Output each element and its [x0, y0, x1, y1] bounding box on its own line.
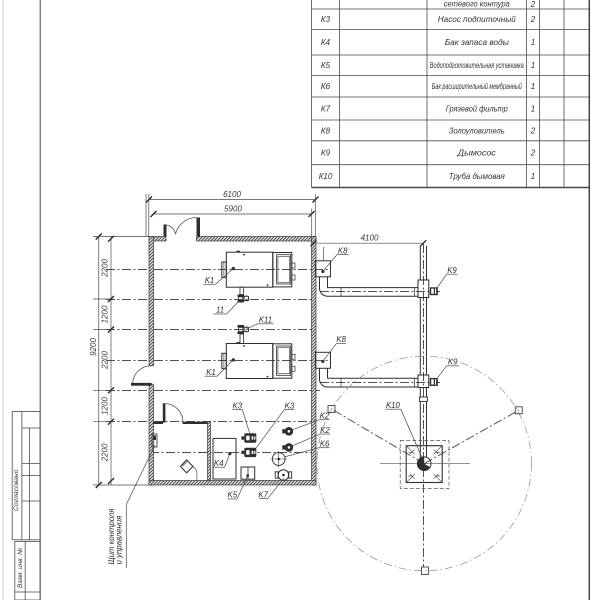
- svg-text:K11: K11: [259, 316, 272, 325]
- svg-text:K8: K8: [338, 246, 348, 255]
- svg-text:К4: К4: [321, 38, 331, 47]
- svg-text:K2: K2: [320, 426, 330, 435]
- svg-text:и управления: и управления: [115, 515, 124, 565]
- svg-text:K1: K1: [205, 276, 215, 285]
- svg-text:Бак расширительный мембранный: Бак расширительный мембранный: [432, 82, 522, 91]
- svg-text:1: 1: [531, 61, 535, 70]
- svg-text:Бак запаса воды: Бак запаса воды: [445, 38, 509, 47]
- svg-text:Согласовано: Согласовано: [13, 469, 20, 511]
- svg-text:К10: К10: [319, 172, 333, 181]
- svg-text:6100: 6100: [223, 190, 241, 199]
- svg-text:2200: 2200: [101, 259, 110, 278]
- svg-text:4100: 4100: [361, 234, 379, 243]
- svg-text:Водоподготовительная установка: Водоподготовительная установка: [430, 61, 524, 70]
- svg-text:K1: K1: [206, 368, 216, 377]
- svg-text:сетевого контура: сетевого контура: [444, 0, 511, 9]
- svg-text:Дымосос: Дымосос: [457, 149, 496, 158]
- svg-text:2200: 2200: [101, 351, 110, 370]
- svg-text:2200: 2200: [101, 443, 110, 462]
- svg-text:К3: К3: [321, 15, 331, 24]
- svg-text:1: 1: [531, 105, 535, 114]
- svg-text:5900: 5900: [224, 205, 242, 214]
- svg-text:2: 2: [530, 0, 536, 9]
- svg-text:K9: K9: [447, 266, 457, 275]
- svg-text:K6: K6: [320, 439, 330, 448]
- svg-text:Взам. инв. №: Взам. инв. №: [17, 548, 24, 588]
- svg-text:К6: К6: [321, 82, 331, 91]
- svg-text:1200: 1200: [101, 397, 110, 415]
- svg-text:1: 1: [531, 172, 535, 181]
- svg-text:К5: К5: [321, 61, 331, 70]
- svg-text:Насос подпиточный: Насос подпиточный: [438, 15, 517, 24]
- svg-text:2: 2: [530, 15, 536, 24]
- svg-text:K8: K8: [336, 335, 346, 344]
- svg-text:11: 11: [216, 306, 224, 315]
- svg-text:9200: 9200: [89, 338, 98, 356]
- svg-text:1: 1: [531, 82, 535, 91]
- svg-text:K7: K7: [258, 490, 268, 499]
- svg-text:Грязевой фильтр: Грязевой фильтр: [446, 105, 509, 114]
- svg-text:2: 2: [530, 149, 536, 158]
- svg-text:Труба дымовая: Труба дымовая: [449, 172, 506, 181]
- svg-text:K10: K10: [386, 401, 401, 410]
- svg-text:1200: 1200: [101, 305, 110, 323]
- svg-text:K4: K4: [214, 459, 224, 468]
- svg-text:K3: K3: [233, 401, 243, 410]
- svg-text:К9: К9: [321, 149, 331, 158]
- svg-text:Золоуловитель: Золоуловитель: [449, 126, 505, 135]
- svg-text:K3: K3: [285, 401, 295, 410]
- svg-text:1: 1: [531, 38, 535, 47]
- svg-text:К8: К8: [321, 126, 331, 135]
- svg-text:К7: К7: [321, 105, 331, 114]
- svg-text:2: 2: [530, 126, 536, 135]
- svg-text:K5: K5: [228, 491, 238, 500]
